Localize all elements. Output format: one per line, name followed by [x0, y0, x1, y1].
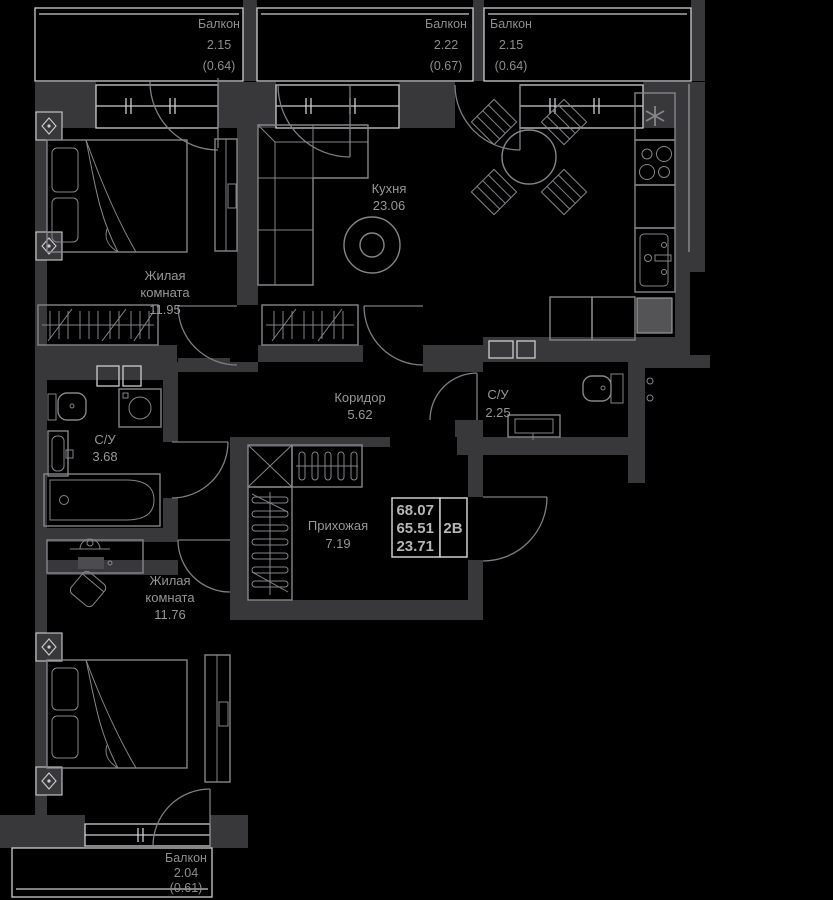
- closet-hangers: [262, 305, 358, 345]
- door-balcony-bedroom-bottom: [153, 789, 210, 846]
- total-area: 68.07: [396, 502, 434, 519]
- balcony-top-right: Балкон 2.15 (0.64): [484, 8, 691, 81]
- balcony-label: Балкон: [198, 17, 240, 31]
- room-area: 11.95: [149, 302, 181, 317]
- walls: [0, 0, 710, 848]
- chair: [68, 569, 107, 608]
- vent-mark-icon: [36, 767, 62, 795]
- room-label: С/У: [487, 387, 509, 402]
- balcony-top-middle: Балкон 2.22 (0.67): [257, 8, 473, 81]
- room-label: Жилая: [144, 268, 185, 283]
- bathroom-sink: [508, 415, 560, 440]
- bed: [47, 140, 187, 252]
- balcony-area-reduced: (0.61): [170, 881, 203, 895]
- room-area: 23.06: [373, 198, 406, 213]
- balcony-bottom: Балкон 2.04 (0.61): [12, 848, 212, 897]
- door-entrance: [483, 497, 547, 561]
- balcony-label: Балкон: [425, 17, 467, 31]
- balcony-area-reduced: (0.67): [430, 59, 463, 73]
- door-bedroom-top: [178, 306, 237, 365]
- kitchen-area: 23.71: [396, 538, 434, 555]
- room-label: комната: [140, 285, 190, 300]
- wardrobe-box: [248, 445, 292, 487]
- room-area: 2.25: [485, 405, 510, 420]
- room-area: 3.68: [92, 449, 117, 464]
- dishwasher: [637, 298, 672, 333]
- doors: [150, 78, 547, 846]
- kitchen-counter: [592, 297, 635, 340]
- door-balcony-kitchen-left: [278, 85, 350, 157]
- vent-mark-icon: [36, 112, 62, 140]
- balcony-area: 2.04: [174, 866, 198, 880]
- balcony-area-reduced: (0.64): [203, 59, 236, 73]
- vent-mark-icon: [36, 232, 62, 260]
- room-label: Коридор: [334, 390, 385, 405]
- balcony-area: 2.15: [499, 38, 523, 52]
- window-kitchen-right: [520, 85, 643, 128]
- closet-vertical: [248, 487, 292, 600]
- floor-plan: Балкон 2.15 (0.64) Балкон 2.22 (0.67) Ба…: [0, 0, 833, 900]
- closet-hangers: [38, 305, 158, 345]
- balcony-area-reduced: (0.64): [495, 59, 528, 73]
- room-area: 11.76: [154, 607, 186, 622]
- room-label: С/У: [94, 432, 116, 447]
- door-bathroom-large: [172, 442, 228, 498]
- room-label: Прихожая: [308, 518, 368, 533]
- wardrobe: [215, 139, 237, 251]
- balcony-label: Балкон: [165, 851, 207, 865]
- toilet: [48, 393, 86, 420]
- vent-mark-icon: [36, 633, 62, 661]
- door-balcony-bedroom-top: [150, 78, 218, 150]
- kitchen-counter: [550, 297, 592, 340]
- floor-plan-page: Балкон 2.15 (0.64) Балкон 2.22 (0.67) Ба…: [0, 0, 833, 900]
- kitchen-counter: [635, 185, 675, 228]
- door-kitchen-corridor: [364, 306, 423, 365]
- stove: [635, 140, 675, 185]
- wardrobe: [205, 655, 230, 782]
- room-area: 5.62: [347, 407, 372, 422]
- rug: [344, 217, 400, 273]
- balcony-top-left: Балкон 2.15 (0.64): [35, 8, 243, 81]
- bed: [47, 660, 187, 768]
- room-label: комната: [145, 590, 195, 605]
- desk-object: [78, 557, 104, 569]
- bathtub: [44, 474, 160, 526]
- balcony-area: 2.22: [434, 38, 458, 52]
- window-bedroom-bottom: [85, 824, 210, 846]
- door-bathroom-small: [430, 373, 477, 420]
- room-label: Кухня: [372, 181, 407, 196]
- kitchen-sink: [635, 228, 675, 292]
- washing-machine: [119, 389, 161, 427]
- living-area: 65.51: [396, 520, 434, 537]
- window-bedroom-top: [96, 85, 218, 128]
- bathroom-sink: [48, 431, 73, 476]
- door-balcony-kitchen-right: [455, 85, 520, 150]
- coat-rack: [292, 445, 362, 487]
- balcony-area: 2.15: [207, 38, 231, 52]
- window-kitchen-left: [276, 85, 399, 128]
- balcony-label: Балкон: [490, 17, 532, 31]
- sofa: [258, 125, 368, 285]
- dining-table: [471, 99, 586, 214]
- unit-type: 2В: [443, 520, 462, 537]
- room-area: 7.19: [325, 536, 350, 551]
- area-info-box: 68.07 65.51 23.71 2В: [392, 498, 467, 557]
- room-label: Жилая: [149, 573, 190, 588]
